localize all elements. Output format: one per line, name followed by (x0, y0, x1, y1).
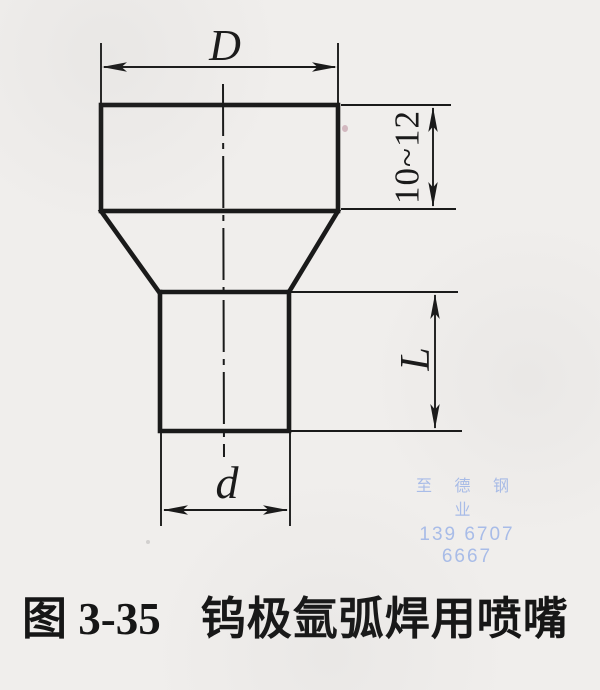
taper-shoulder-outline (101, 211, 338, 292)
center-line (223, 84, 224, 457)
figure-title: 钨极氩弧焊用喷嘴 (201, 582, 569, 647)
dim-label-tip-diameter: d (216, 460, 239, 506)
scanned-figure-page: D 10~12 L d 至 德 钢 业 139 6707 6667 图 3-35… (0, 0, 600, 690)
dim-label-outer-diameter: D (209, 24, 241, 68)
dim-label-body-length: L (395, 347, 437, 370)
figure-caption: 图 3-35 钨极氩弧焊用喷嘴 (22, 582, 569, 647)
dim-label-flange-height: 10~12 (390, 110, 425, 204)
figure-number: 图 3-35 (22, 582, 161, 647)
flange-outline (101, 105, 338, 211)
